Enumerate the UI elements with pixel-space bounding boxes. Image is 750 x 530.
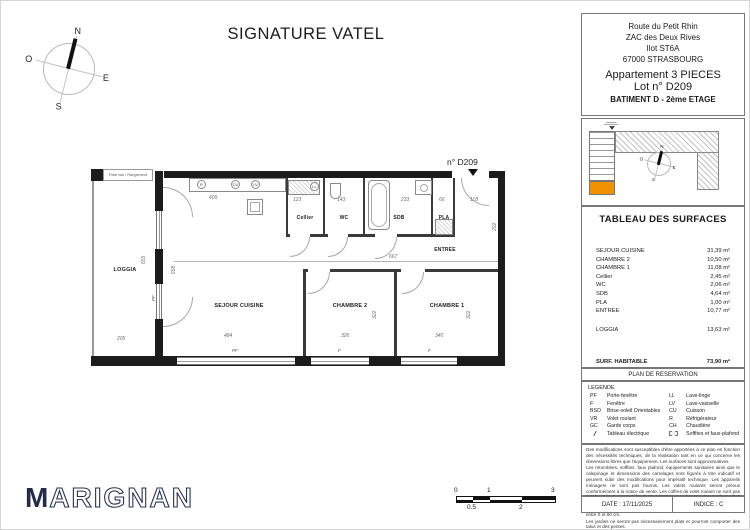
room-label-cellier: Cellier — [286, 215, 324, 221]
compass-south-label: S — [56, 102, 62, 112]
logo-initial: M — [25, 482, 49, 514]
dimension: 205 — [117, 336, 125, 342]
fridge-icon: R — [197, 180, 206, 189]
dimension: 409 — [209, 195, 217, 201]
wall-segment — [155, 249, 163, 284]
loggia-outer-wall — [92, 181, 94, 356]
surface-table-title: TABLEAU DES SURFACES — [582, 207, 744, 225]
dimension: 233 — [401, 197, 409, 203]
washing-machine-icon: LL — [310, 182, 319, 191]
dimension: 484 — [224, 333, 232, 339]
partition — [394, 269, 397, 356]
room-label-chambre1: CHAMBRE 1 — [399, 303, 495, 309]
legend-row: BSOBrise-soleil Orientables CUCuisson — [582, 408, 744, 416]
room-label-entree: ENTREE — [419, 247, 471, 253]
legend-row: PFPorte-fenêtre LLLave-linge — [582, 393, 744, 401]
privacy-screen: Pare vue / Rangement — [103, 169, 153, 181]
sheet-footer: DATE : 17/11/2025 INDICE : C — [581, 496, 745, 513]
address-line: ZAC des Deux Rives — [582, 32, 744, 43]
floor-plan-sheet: SIGNATURE VATEL N S O E n° D209 Pare vue… — [0, 0, 750, 530]
scale-label: 0.5 — [467, 504, 476, 511]
cooktop-icon: CU — [231, 180, 240, 189]
window-label-f: F — [338, 348, 341, 353]
scale-bar-graphic — [456, 496, 556, 503]
address-line: Ilot ST6A — [582, 43, 744, 54]
boiler-unit — [435, 219, 453, 235]
scale-label: 1 — [487, 487, 491, 494]
wall-segment — [155, 171, 163, 211]
map-compass-icon: N S O E — [642, 147, 676, 181]
reservation-plan-title: PLAN DE RESERVATION — [628, 372, 697, 378]
title-block-sidebar: Route du Petit Rhin ZAC des Deux Rives I… — [579, 1, 749, 530]
scale-label: 2 — [519, 504, 523, 511]
door-arc-wc — [328, 237, 348, 257]
address-line: 67000 STRASBOURG — [582, 54, 744, 65]
dimension: 202 — [492, 223, 498, 231]
disclaimer-paragraph: Les jardins ne seront pas nécessairement… — [586, 519, 740, 530]
wall-segment — [164, 171, 452, 178]
electrical-panel-icon — [590, 431, 600, 436]
scale-bar: 0 1 3 0.5 2 — [456, 487, 556, 513]
surface-table-box: TABLEAU DES SURFACES SEJOUR CUISINE31,39… — [581, 206, 745, 368]
map-caption-mark — [606, 122, 616, 123]
surface-row: PLA1,00 m² — [582, 299, 744, 308]
surface-row: SDB4,64 m² — [582, 290, 744, 299]
dimension: 118 — [470, 197, 478, 203]
soffit-icon — [669, 431, 678, 436]
project-address-box: Route du Petit Rhin ZAC des Deux Rives I… — [581, 13, 745, 116]
room-label-chambre2: CHAMBRE 2 — [307, 303, 393, 309]
disclaimer-paragraph: Des modifications sont susceptibles d'êt… — [586, 447, 740, 464]
compass-west-label: O — [25, 54, 32, 64]
compass-rose-icon: N S O E — [31, 31, 107, 107]
room-label-pla: PLA — [433, 215, 455, 221]
compass-north-label: N — [660, 144, 663, 149]
dimension: 655 — [141, 256, 147, 264]
address-line: Route du Petit Rhin — [582, 21, 744, 32]
site-location-map: N S O E — [581, 118, 745, 206]
wall-segment — [155, 319, 163, 356]
surface-total-habitable: SURF. HABITABLE73,90 m² — [582, 358, 744, 367]
disclaimer-box: Des modifications sont susceptibles d'êt… — [581, 444, 745, 496]
dimension: 143 — [337, 197, 345, 203]
window-chambre2 — [311, 357, 369, 365]
scale-label: 3 — [551, 487, 555, 494]
room-label-loggia: LOGGIA — [97, 267, 153, 273]
surface-row: ENTREE10,77 m² — [582, 307, 744, 316]
bathtub — [368, 180, 390, 230]
lot-number: Lot n° D209 — [582, 81, 744, 93]
entrance-arrow-icon — [468, 169, 478, 176]
surface-row: Cellier2,45 m² — [582, 273, 744, 282]
legend-title: LEGENDE — [582, 382, 744, 393]
room-label-sejour: SEJOUR CUISINE — [184, 303, 294, 309]
dimension: 340 — [435, 333, 443, 339]
indice-cell: INDICE : C — [672, 496, 745, 513]
wall-segment — [498, 171, 505, 366]
map-building-hatch — [697, 152, 719, 190]
legend-box: LEGENDE PFPorte-fenêtre LLLave-linge FFe… — [581, 381, 745, 444]
door-arc-cellier — [290, 237, 310, 257]
compass-east-label: E — [673, 165, 676, 170]
legend-row: Tableau électrique Soffites et faux-plaf… — [582, 431, 744, 440]
map-caption-mark — [604, 124, 618, 125]
room-label-wc: WC — [325, 215, 363, 221]
surface-row-loggia: LOGGIA13,63 m² — [582, 326, 744, 335]
room-label-sdb: SDB — [367, 215, 431, 221]
kitchen-sink — [247, 199, 263, 215]
dimension: 66 — [439, 197, 445, 203]
dimension: 322 — [466, 311, 472, 319]
window-chambre1 — [401, 357, 457, 365]
dimension: 667 — [389, 254, 397, 260]
dimension: 326 — [341, 333, 349, 339]
logo-wordmark: ARIGNAN — [49, 482, 194, 514]
apartment-type: Appartement 3 PIECES — [582, 69, 744, 81]
door-arc-chambre1 — [402, 272, 424, 294]
compass-west-label: O — [640, 157, 644, 162]
partition — [363, 178, 365, 234]
reservation-plan-bar: PLAN DE RESERVATION — [581, 368, 745, 381]
map-unit-highlight — [589, 181, 615, 195]
building-floor: BATIMENT D - 2ème ETAGE — [582, 95, 744, 104]
lot-number-tag: n° D209 — [447, 157, 478, 167]
partition — [323, 178, 325, 234]
date-cell: DATE : 17/11/2025 — [581, 496, 672, 513]
surface-row: CHAMBRE 210,50 m² — [582, 256, 744, 265]
window-label-pf: PF — [151, 295, 156, 301]
compass-south-label: S — [652, 177, 655, 182]
window-sejour — [177, 357, 295, 365]
partition — [348, 234, 375, 237]
scale-label: 0 — [454, 487, 458, 494]
dimension: 123 — [293, 197, 301, 203]
washbasin — [415, 180, 432, 195]
page-title: SIGNATURE VATEL — [161, 25, 451, 44]
legend-row: GCGarde corps CHChaudière — [582, 423, 744, 431]
wall-segment — [91, 169, 103, 181]
partition — [303, 269, 306, 356]
door-arc-loggia-2 — [163, 297, 193, 327]
dimension: 322 — [372, 311, 378, 319]
legend-row: FFenêtre LVLave-vaisselle — [582, 401, 744, 409]
map-access-arrow-icon — [609, 126, 615, 130]
compass-east-label: E — [103, 73, 109, 83]
dishwasher-icon: LV — [251, 180, 260, 189]
window-loggia-1 — [156, 211, 162, 249]
window-label-pf: PF — [232, 348, 238, 353]
legend-table: PFPorte-fenêtre LLLave-linge FFenêtre LV… — [582, 393, 744, 440]
apartment-floor-plan: n° D209 Pare vue / Rangement — [89, 159, 515, 374]
compass-axes: N S O E — [23, 23, 115, 115]
privacy-screen-label: Pare vue / Rangement — [109, 173, 147, 177]
surface-row: WC2,06 m² — [582, 281, 744, 290]
surface-row: SEJOUR CUISINE31,39 m² — [582, 247, 744, 256]
compass-north-label: N — [74, 26, 81, 36]
map-stairwell — [589, 131, 615, 181]
partition — [330, 269, 401, 272]
dimension-line — [174, 261, 498, 262]
marignan-logo: M ARIGNAN — [25, 482, 194, 514]
dimension: 658 — [171, 266, 177, 274]
partition — [453, 178, 455, 234]
legend-row: VRVolet roulant RRéfrigérateur — [582, 416, 744, 424]
window-label-f: F — [428, 348, 431, 353]
partition — [310, 234, 328, 237]
surface-row: CHAMBRE 111,08 m² — [582, 264, 744, 273]
partition — [425, 269, 498, 272]
door-arc-chambre2 — [308, 272, 330, 294]
window-loggia-2 — [156, 284, 162, 319]
